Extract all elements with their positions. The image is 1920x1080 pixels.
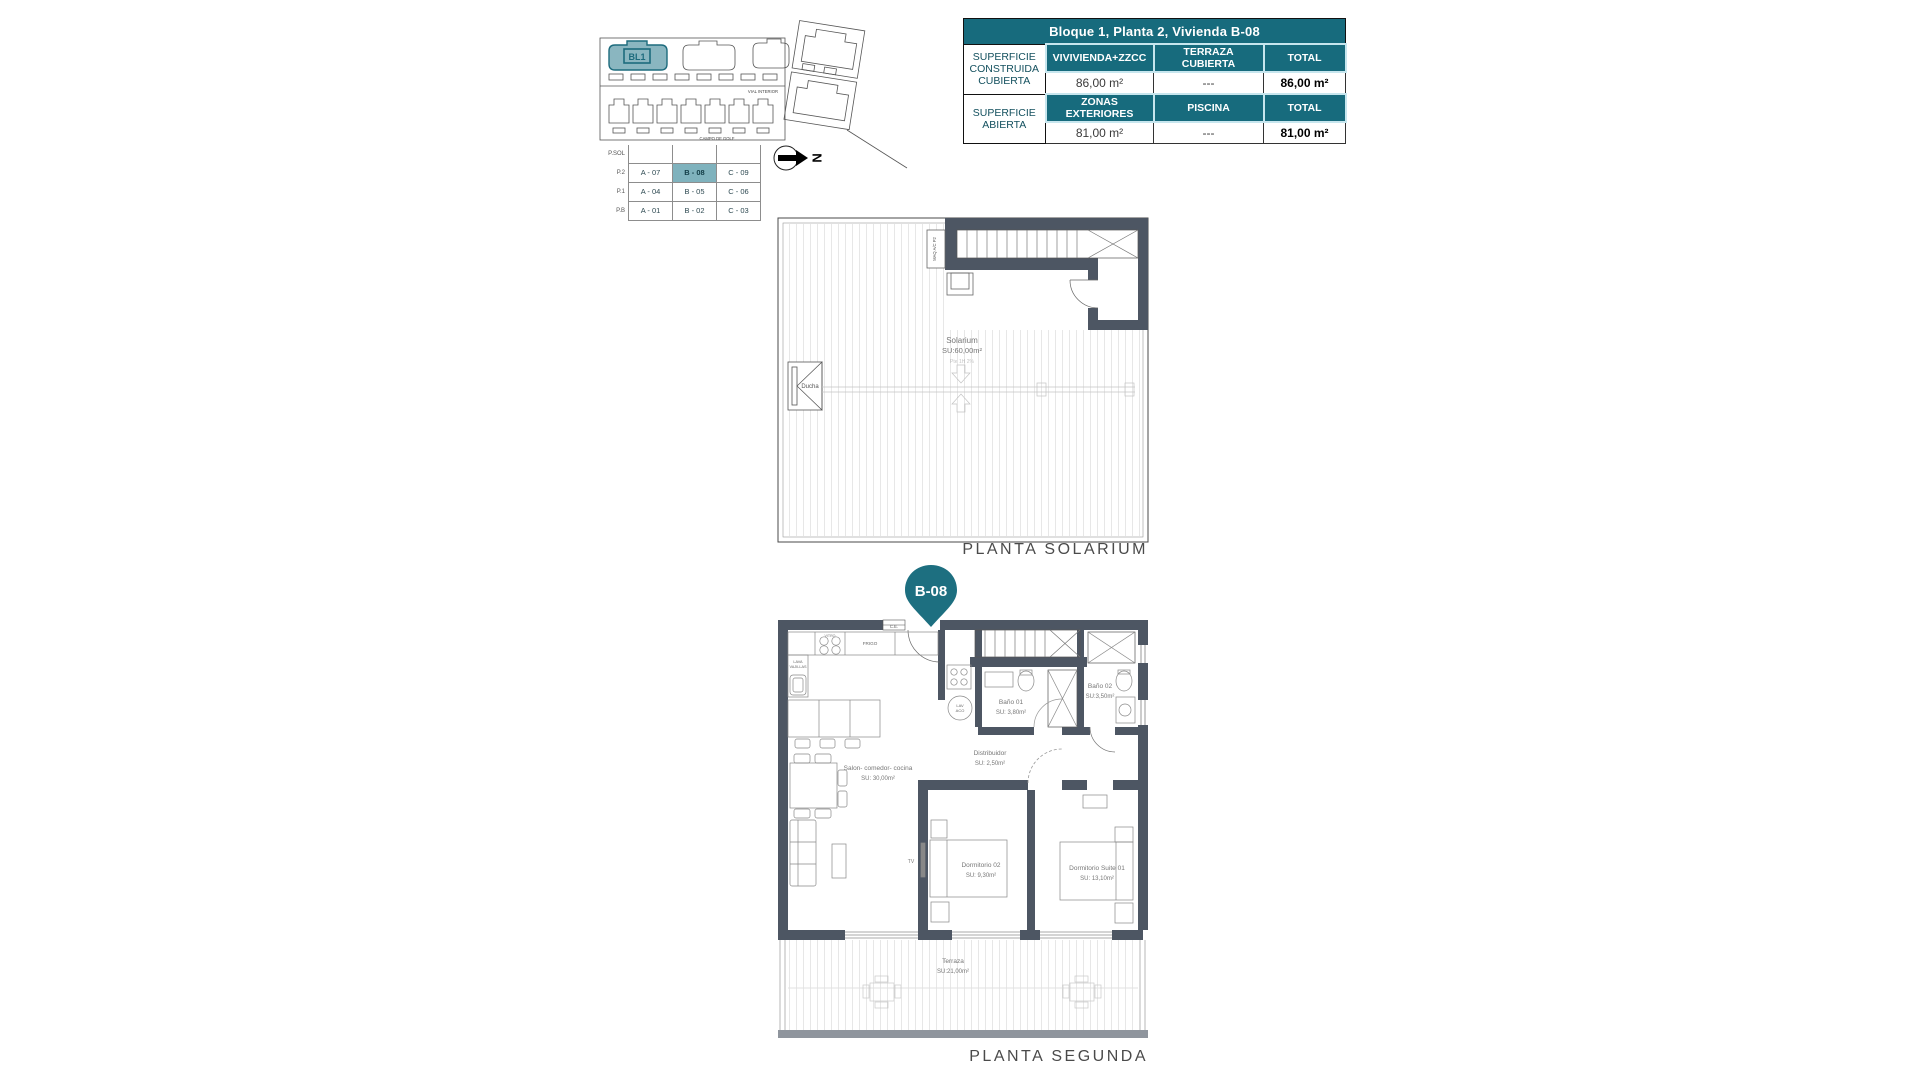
col-header: VIVIVIENDA+ZZCC [1046, 44, 1154, 72]
col-header: TERRAZA CUBIERTA [1154, 44, 1264, 72]
lavavajillas-label2: VAJILLAS [789, 665, 806, 669]
col-header: TOTAL [1264, 94, 1346, 122]
value-piscina: --- [1154, 122, 1264, 144]
north-arrow: N [770, 138, 830, 178]
legend-cell: A - 07 [629, 163, 673, 182]
salon-area: SU: 30,00m² [861, 776, 895, 782]
solarium-area-label: SU:60,00m² [942, 346, 983, 355]
row-label-superficie-abierta: SUPERFICIE ABIERTA [964, 94, 1046, 144]
segunda-floor-plan: C.E. VITRO FRIG [775, 615, 1150, 1045]
bl1-label: BL1 [628, 52, 645, 62]
bano1-label: Baño 01 [999, 699, 1024, 706]
terraza-label: Terraza [942, 958, 964, 965]
solarium-shower: Ducha [788, 362, 822, 410]
legend-level: P.SOL [598, 145, 629, 163]
info-table-title: Bloque 1, Planta 2, Vivienda B-08 [964, 19, 1346, 45]
value-terraza-cubierta: --- [1154, 72, 1264, 94]
suite-label: Dormitorio Suite 01 [1069, 865, 1125, 872]
legend-cell: C - 09 [717, 163, 761, 182]
legend-cell: B - 02 [673, 201, 717, 220]
north-arrow-shaft [778, 155, 796, 161]
value-vivienda: 86,00 m² [1046, 72, 1154, 94]
stairwell [975, 630, 1080, 657]
bedroom-2 [930, 820, 1007, 922]
ce-label: C.E. [890, 624, 898, 629]
dorm2-label: Dormitorio 02 [961, 862, 1000, 869]
pin-label: B-08 [915, 583, 948, 600]
lavadora-label2: ACO [956, 708, 965, 713]
legend-cell: B - 05 [673, 182, 717, 201]
suite-door-arc [1090, 727, 1115, 752]
salon-label: Salon- comedor- cocina [844, 765, 913, 772]
legend-cell: C - 06 [717, 182, 761, 201]
legend-cell: C - 03 [717, 201, 761, 220]
entry-door-arc [908, 630, 940, 662]
legend-cell: A - 01 [629, 201, 673, 220]
dorm2-area: SU: 9,30m² [966, 873, 996, 879]
ac-machine-label: MAQ A/C P2 [932, 236, 937, 260]
entry-and-window: C.E. [883, 620, 940, 662]
golf-label: CAMPO DE GOLF [700, 136, 735, 141]
solarium-room-label: Solarium [946, 336, 978, 345]
walls [778, 620, 1148, 940]
lavavajillas-label: LAVA [793, 660, 803, 664]
value-zonas-exteriores: 81,00 m² [1046, 122, 1154, 144]
suite-area: SU: 13,10m² [1080, 876, 1114, 882]
legend-cell: A - 04 [629, 182, 673, 201]
bedroom-suite [1060, 795, 1133, 923]
col-header: PISCINA [1154, 94, 1264, 122]
legend-level: P.B [598, 201, 629, 220]
road-label: VIAL INTERIOR [748, 89, 778, 94]
distribuidor-label: Distribuidor [974, 750, 1008, 757]
legend-level: P.2 [598, 163, 629, 182]
segunda-plan-title: PLANTA SEGUNDA [948, 1048, 1148, 1066]
col-header: TOTAL [1264, 44, 1346, 72]
bottom-windows [845, 932, 1112, 938]
bano1-area: SU: 3,80m² [996, 710, 1026, 716]
kitchen [788, 632, 938, 748]
living-room [790, 754, 925, 886]
shower-label: Ducha [801, 384, 819, 390]
legend-level: P.1 [598, 182, 629, 201]
solarium-slope-note: Pte 1H 2% [950, 359, 974, 365]
tv-label: TV [908, 859, 915, 865]
row-label-superficie-construida: SUPERFICIE CONSTRUIDA CUBIERTA [964, 44, 1046, 94]
value-total-abierta: 81,00 m² [1264, 122, 1346, 144]
bano2-label: Baño 02 [1088, 683, 1113, 690]
frigo-label: FRIGO [863, 641, 878, 646]
vitro-label: VITRO [825, 634, 836, 638]
value-total-construida: 86,00 m² [1264, 72, 1346, 94]
distribuidor-area: SU: 2,50m² [975, 761, 1005, 767]
bano2-area: SU:3,50m² [1086, 694, 1115, 700]
surface-info-table: Bloque 1, Planta 2, Vivienda B-08 SUPERF… [963, 18, 1347, 144]
col-header: ZONAS EXTERIORES [1046, 94, 1154, 122]
terrace: Terraza SU:21,00m² [778, 940, 1148, 1038]
solarium-plan-title: PLANTA SOLARIUM [948, 541, 1148, 559]
legend-cell [629, 145, 673, 163]
legend-cell [717, 145, 761, 163]
dorm2-door-arc [1028, 749, 1062, 783]
solarium-floor-plan: MAQ A/C P2 Ducha Solarium SU:60,00m² Pte… [775, 215, 1150, 550]
terraza-area: SU:21,00m² [937, 969, 969, 975]
unit-legend-table: P.SOL P.2 A - 07 B - 08 C - 09 P.1 A - 0… [598, 145, 761, 221]
plan-sheet: BL1 VIAL INTERIOR CAMPO DE GOLF N P.SOL … [0, 0, 1920, 1080]
legend-cell-highlighted: B - 08 [673, 163, 717, 182]
site-block-bl1: BL1 [609, 41, 667, 70]
bathroom-2 [1088, 632, 1135, 723]
ac-machine-box: MAQ A/C P2 [927, 230, 945, 268]
north-arrow-head [796, 150, 808, 166]
north-letter: N [810, 153, 825, 162]
legend-cell [673, 145, 717, 163]
